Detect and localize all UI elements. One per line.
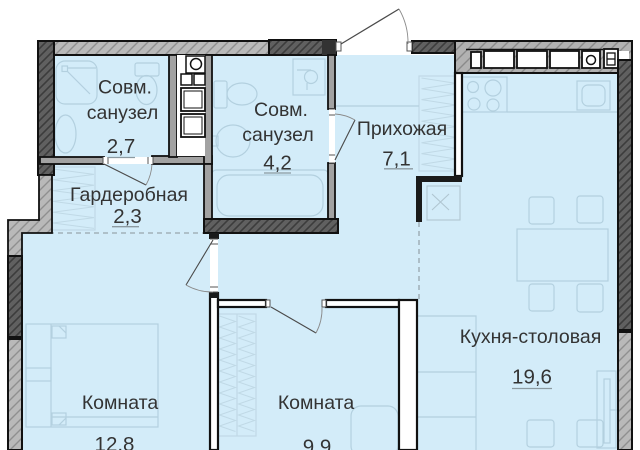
svg-text:7,1: 7,1 — [382, 148, 411, 171]
svg-text:2,7: 2,7 — [107, 135, 136, 158]
svg-text:19,6: 19,6 — [512, 366, 552, 389]
svg-text:Совм.: Совм. — [254, 99, 308, 121]
svg-text:Кухня-столовая: Кухня-столовая — [460, 326, 602, 348]
svg-text:12,8: 12,8 — [95, 433, 135, 450]
svg-text:санузел: санузел — [242, 124, 313, 146]
svg-text:2,3: 2,3 — [113, 205, 142, 228]
svg-text:4,2: 4,2 — [263, 152, 292, 175]
svg-text:санузел: санузел — [87, 102, 158, 124]
svg-text:Прихожая: Прихожая — [357, 118, 447, 140]
svg-text:Совм.: Совм. — [98, 77, 152, 99]
svg-text:Комната: Комната — [278, 392, 355, 414]
svg-text:Гардеробная: Гардеробная — [70, 184, 188, 206]
svg-text:Комната: Комната — [82, 392, 159, 414]
svg-text:9,9: 9,9 — [303, 436, 332, 450]
